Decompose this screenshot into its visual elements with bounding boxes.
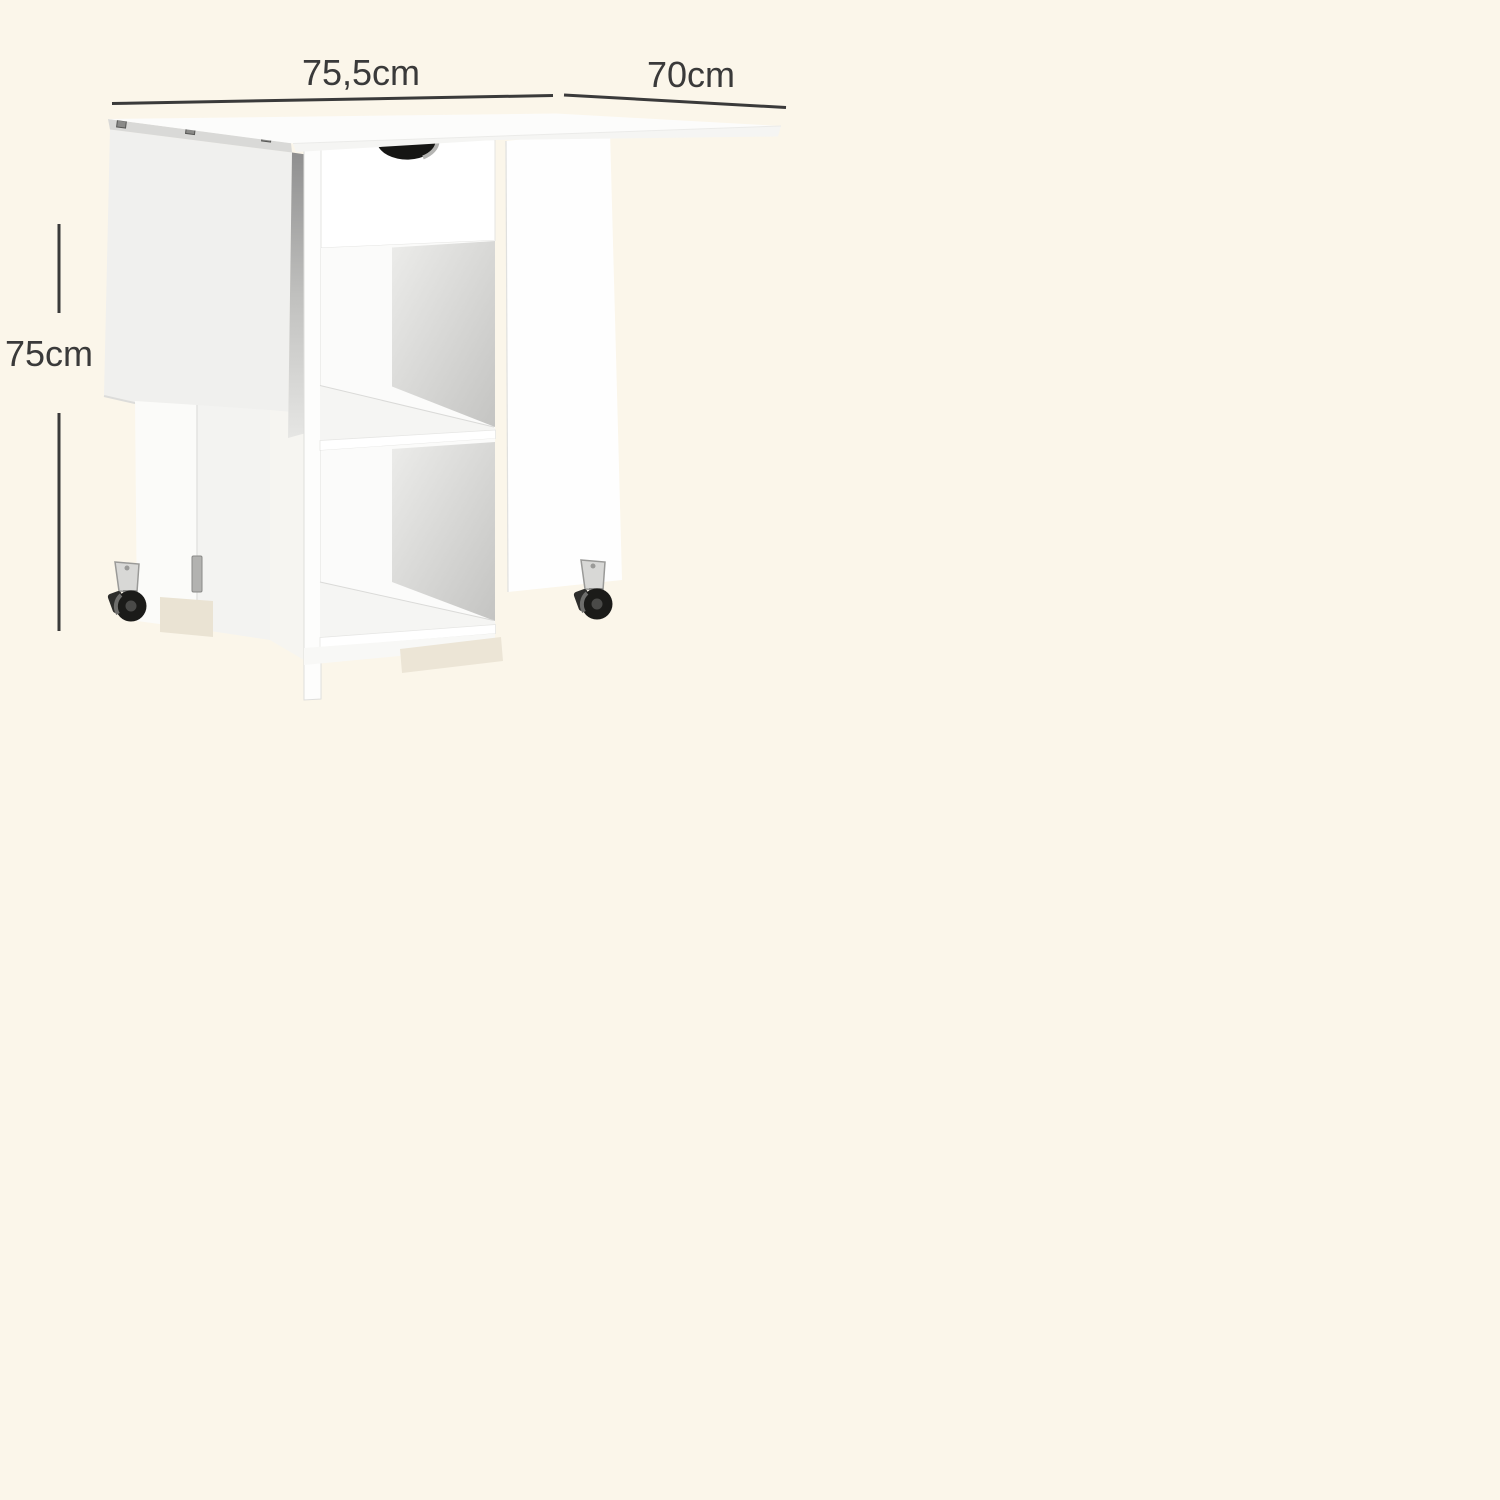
svg-text:75,5cm: 75,5cm <box>302 52 420 93</box>
svg-text:75cm: 75cm <box>5 333 93 374</box>
svg-text:70cm: 70cm <box>647 54 735 95</box>
